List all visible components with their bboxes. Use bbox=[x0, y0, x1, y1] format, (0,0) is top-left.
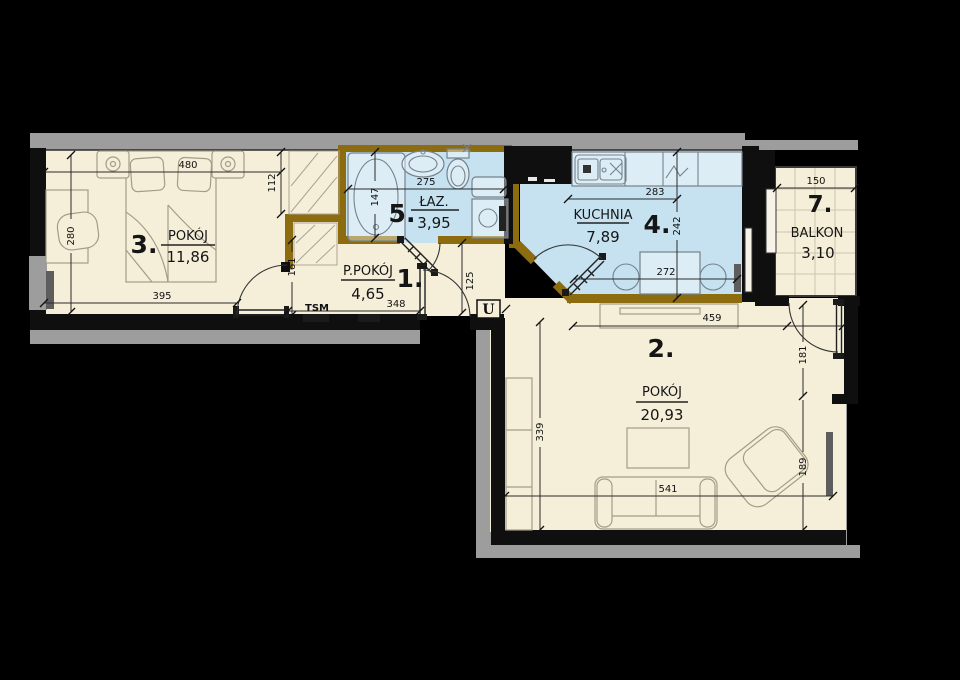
room-7-area: 3,10 bbox=[801, 244, 834, 262]
meter-box-2 bbox=[358, 314, 380, 322]
room-5-area: 3,95 bbox=[417, 214, 450, 232]
balcony-door-glass bbox=[766, 189, 776, 253]
room-4-number: 4. bbox=[644, 210, 671, 239]
dim-kitchen-depth: 242 bbox=[672, 216, 683, 235]
dim-vestibule: 125 bbox=[465, 271, 476, 290]
nightstand-right bbox=[212, 151, 244, 178]
room-1-area: 4,65 bbox=[351, 285, 384, 303]
dim-balcony-width: 150 bbox=[806, 176, 825, 187]
dim-room3-left: 280 bbox=[66, 226, 77, 245]
dim-room2-right-upper: 181 bbox=[798, 345, 809, 364]
dim-room2-bottom: 541 bbox=[658, 484, 677, 495]
dim-wardrobe-height: 112 bbox=[267, 173, 278, 192]
room-3-area: 11,86 bbox=[167, 248, 210, 266]
room-2-number: 2. bbox=[648, 334, 675, 363]
entry-beam-letter: U bbox=[482, 302, 494, 318]
desk-chair bbox=[56, 210, 101, 251]
room-5-label: 5. ŁAZ. 3,95 bbox=[389, 195, 459, 232]
room-1-name: P.POKÓJ bbox=[343, 263, 393, 279]
room-4-name: KUCHNIA bbox=[574, 208, 633, 223]
floor-plan: 480 112 280 395 161 275 147 348 1 bbox=[0, 0, 960, 680]
room-2-name: POKÓJ bbox=[642, 384, 682, 400]
toilet bbox=[447, 159, 469, 189]
pillow-left bbox=[130, 157, 165, 192]
room-1-number: 1. bbox=[397, 264, 424, 293]
room-7-number: 7. bbox=[808, 192, 833, 218]
meter-box-1 bbox=[303, 314, 329, 322]
shelving bbox=[506, 378, 532, 530]
bath-cabinet bbox=[472, 177, 506, 197]
room-7-name: BALKON bbox=[791, 226, 844, 241]
room-5-name: ŁAZ. bbox=[418, 195, 448, 210]
dim-hall-door: 161 bbox=[287, 257, 298, 276]
room-3-number: 3. bbox=[131, 230, 158, 259]
room-5-number: 5. bbox=[389, 199, 416, 228]
dim-room2-left: 339 bbox=[535, 422, 546, 441]
dim-kitchen-table: 272 bbox=[656, 267, 675, 278]
dim-hall-width: 348 bbox=[386, 299, 405, 310]
kitchen-window bbox=[745, 228, 752, 292]
tsm-label: TSM bbox=[305, 303, 329, 314]
dim-bath-width: 275 bbox=[416, 177, 435, 188]
dim-kitchen-width: 283 bbox=[645, 187, 664, 198]
nightstand-left bbox=[97, 151, 129, 178]
toilet-tank bbox=[447, 149, 469, 158]
room-2-area: 20,93 bbox=[641, 406, 684, 424]
dim-room3-bottom: 395 bbox=[152, 291, 171, 302]
sofa bbox=[595, 477, 717, 529]
dim-bath-depth: 147 bbox=[370, 187, 381, 206]
ventilation-shaft bbox=[511, 146, 572, 184]
dim-room2-right-lower: 189 bbox=[798, 457, 809, 476]
dim-room2-top: 459 bbox=[702, 313, 721, 324]
dim-room3-top: 480 bbox=[178, 160, 197, 171]
radiator-room2 bbox=[826, 432, 833, 496]
sink bbox=[402, 151, 444, 177]
room-4-area: 7,89 bbox=[586, 228, 619, 246]
room-3-name: POKÓJ bbox=[168, 228, 208, 244]
